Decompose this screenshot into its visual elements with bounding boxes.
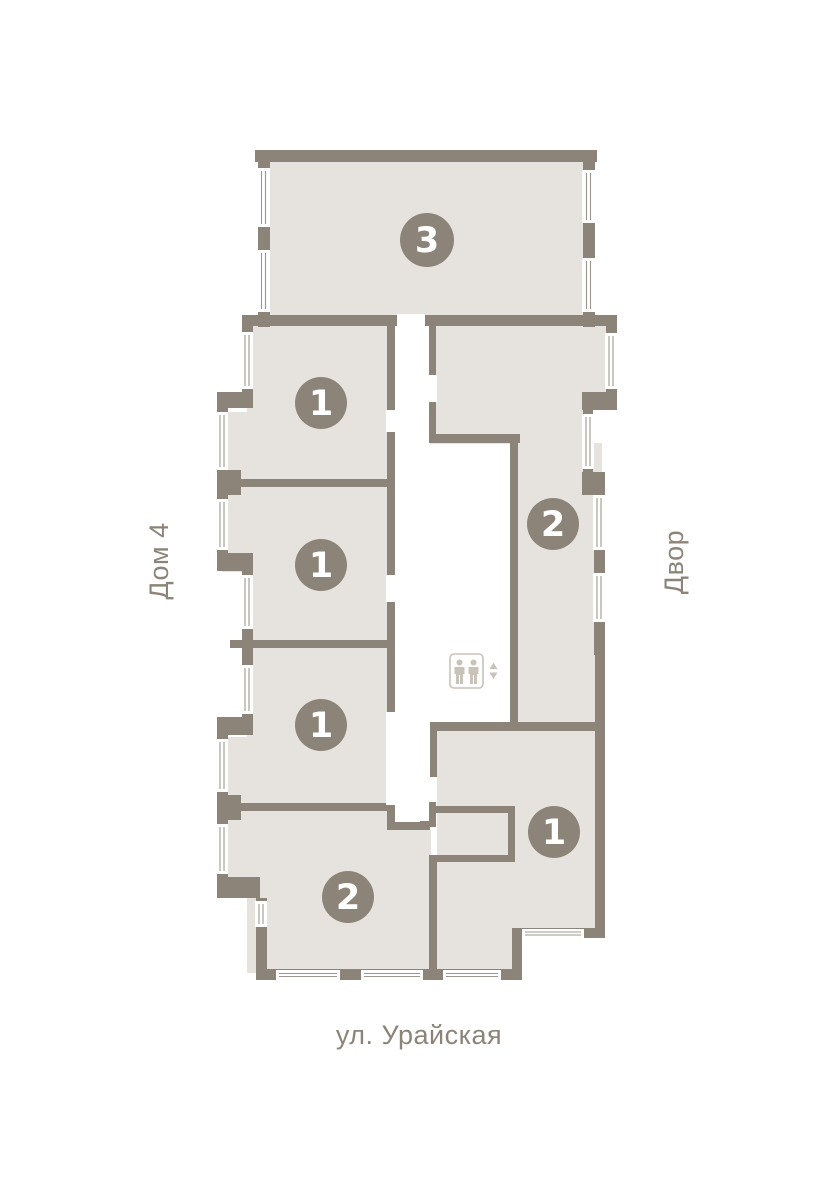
window [255, 901, 267, 927]
svg-text:2[interactable]: 2 [541, 505, 565, 545]
label-courtyard: Двор [659, 530, 689, 594]
unit-badge-upper-left-1room[interactable]: 1 [295, 377, 347, 429]
window [241, 332, 253, 389]
door-opening [397, 314, 425, 327]
window [605, 333, 617, 389]
unit-badge-right-2room[interactable]: 2 [527, 498, 579, 550]
window [582, 414, 594, 469]
window [216, 499, 228, 550]
label-house-4: Дом 4 [144, 522, 174, 599]
unit-badge-top-3room[interactable]: 3 [400, 213, 454, 267]
window [216, 412, 228, 470]
window [216, 824, 228, 874]
label-street: ул. Урайская [336, 1020, 502, 1050]
svg-text:1[interactable]: 1 [309, 546, 333, 586]
window [522, 929, 584, 938]
unit-badge-bottom-right-1room[interactable]: 1 [528, 806, 580, 858]
window [593, 495, 605, 550]
elevator-two-people-up-down-icon [450, 654, 498, 688]
window [582, 170, 595, 223]
window [443, 970, 501, 980]
window [276, 970, 340, 980]
floor-plan: 3 1 2 1 1 1 2 Дом 4 Двор ул. Урайская [0, 0, 836, 1200]
window [257, 168, 270, 227]
window [241, 575, 253, 629]
svg-text:1[interactable]: 1 [542, 813, 566, 853]
door-opening [428, 375, 437, 402]
window [593, 573, 605, 622]
door-opening [386, 410, 396, 432]
window [361, 970, 423, 980]
window [582, 258, 595, 312]
svg-text:1[interactable]: 1 [309, 384, 333, 424]
svg-text:3[interactable]: 3 [415, 221, 439, 261]
arrow-up-icon [490, 663, 498, 670]
unit-badge-lower-left-1room[interactable]: 1 [295, 699, 347, 751]
window [241, 665, 253, 714]
unit-badge-middle-left-1room[interactable]: 1 [295, 539, 347, 591]
svg-text:2[interactable]: 2 [336, 878, 360, 918]
door-opening [386, 575, 396, 602]
door-opening [386, 712, 396, 805]
arrow-down-icon [490, 673, 498, 680]
unit-badge-bottom-left-2room[interactable]: 2 [322, 871, 374, 923]
window [257, 250, 270, 312]
svg-text:1[interactable]: 1 [309, 706, 333, 746]
window [216, 739, 228, 792]
